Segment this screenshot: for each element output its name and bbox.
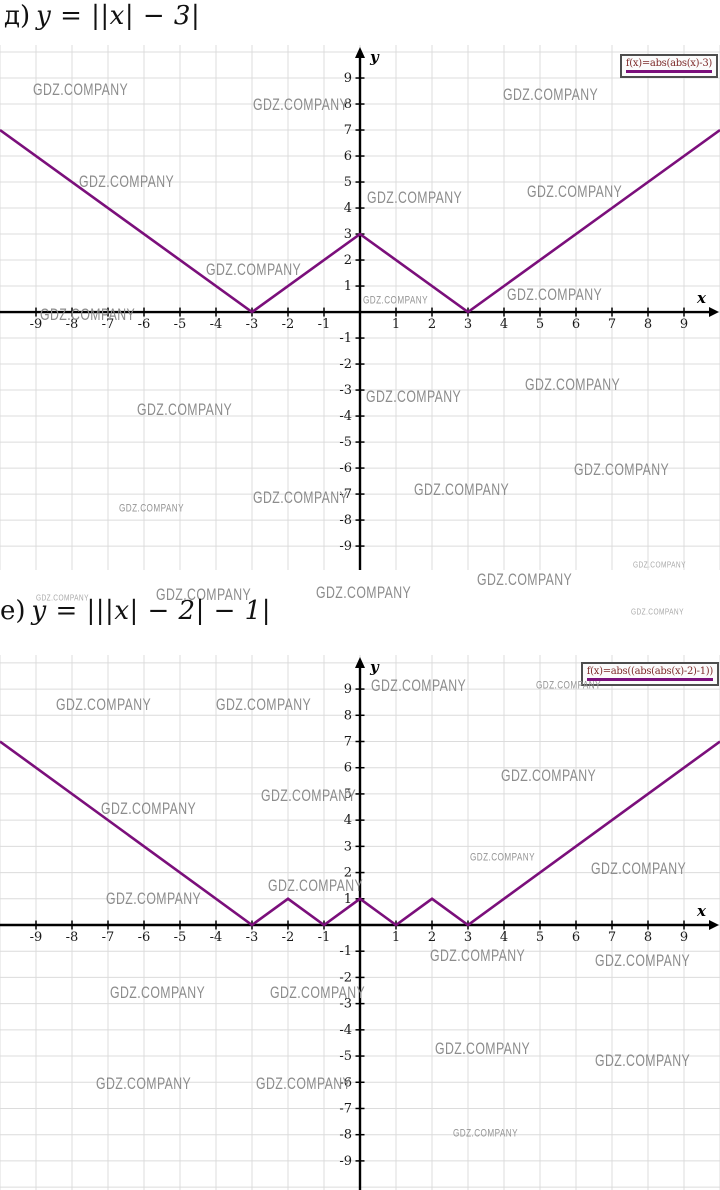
svg-text:4: 4 — [344, 201, 352, 216]
svg-text:-1: -1 — [339, 331, 352, 346]
svg-text:1: 1 — [344, 279, 352, 294]
svg-text:-1: -1 — [339, 944, 352, 959]
svg-text:5: 5 — [536, 317, 544, 332]
svg-text:-3: -3 — [246, 317, 259, 332]
figure1-formula: y = ||x| − 3| — [36, 1, 200, 31]
figure2-legend-line-swatch — [587, 678, 713, 681]
svg-text:4: 4 — [500, 930, 508, 945]
svg-text:2: 2 — [344, 253, 352, 268]
svg-text:6: 6 — [572, 317, 580, 332]
svg-text:6: 6 — [344, 149, 352, 164]
svg-text:8: 8 — [344, 97, 352, 112]
svg-text:8: 8 — [644, 930, 652, 945]
figure2-plot: -9-8-7-6-5-4-3-2-1123456789-9-8-7-6-5-4-… — [0, 655, 720, 1190]
svg-text:-5: -5 — [339, 435, 352, 450]
figure1-plot: -9-8-7-6-5-4-3-2-1123456789-9-8-7-6-5-4-… — [0, 45, 720, 570]
svg-text:1: 1 — [392, 317, 400, 332]
svg-text:-7: -7 — [339, 487, 352, 502]
svg-text:y: y — [369, 48, 380, 66]
svg-text:4: 4 — [344, 813, 352, 828]
figure2-formula: y = |||x| − 2| − 1| — [32, 596, 271, 626]
svg-text:-9: -9 — [30, 930, 43, 945]
svg-text:-7: -7 — [102, 317, 115, 332]
svg-text:8: 8 — [644, 317, 652, 332]
svg-text:5: 5 — [536, 930, 544, 945]
watermark: GDZ.COMPANY — [631, 607, 684, 617]
svg-text:-3: -3 — [246, 930, 259, 945]
svg-text:9: 9 — [344, 71, 352, 86]
svg-text:7: 7 — [608, 930, 616, 945]
svg-text:-4: -4 — [210, 317, 223, 332]
svg-text:3: 3 — [464, 930, 472, 945]
svg-text:1: 1 — [392, 930, 400, 945]
svg-text:7: 7 — [344, 735, 352, 750]
svg-text:-1: -1 — [318, 930, 331, 945]
svg-text:-9: -9 — [339, 1154, 352, 1169]
svg-text:-5: -5 — [174, 930, 187, 945]
svg-text:-5: -5 — [339, 1049, 352, 1064]
svg-text:3: 3 — [464, 317, 472, 332]
figure2-legend: f(x)=abs((abs(abs(x)-2)-1)) — [581, 662, 719, 686]
svg-text:6: 6 — [344, 761, 352, 776]
figure2-canvas: -9-8-7-6-5-4-3-2-1123456789-9-8-7-6-5-4-… — [0, 655, 720, 1190]
figure2-label: е) — [0, 596, 26, 626]
svg-text:-9: -9 — [30, 317, 43, 332]
svg-text:-8: -8 — [66, 317, 79, 332]
svg-text:-8: -8 — [339, 513, 352, 528]
svg-text:4: 4 — [500, 317, 508, 332]
svg-text:x: x — [696, 902, 707, 920]
svg-text:-6: -6 — [339, 461, 352, 476]
figure1-legend-formula: f(x)=abs(abs(x)-3) — [626, 58, 712, 69]
svg-text:9: 9 — [680, 930, 688, 945]
svg-text:7: 7 — [344, 123, 352, 138]
svg-text:-5: -5 — [174, 317, 187, 332]
svg-text:2: 2 — [428, 930, 436, 945]
svg-text:-8: -8 — [66, 930, 79, 945]
svg-text:-8: -8 — [339, 1128, 352, 1143]
page: д)y = ||x| − 3| -9-8-7-6-5-4-3-2-1123456… — [0, 0, 720, 1190]
svg-text:-6: -6 — [138, 930, 151, 945]
svg-text:-4: -4 — [210, 930, 223, 945]
figure2-legend-formula: f(x)=abs((abs(abs(x)-2)-1)) — [587, 666, 713, 677]
svg-text:-6: -6 — [138, 317, 151, 332]
figure1-legend: f(x)=abs(abs(x)-3) — [620, 54, 718, 78]
svg-text:9: 9 — [344, 682, 352, 697]
figure1-label: д) — [4, 1, 30, 31]
svg-text:-3: -3 — [339, 383, 352, 398]
svg-text:-1: -1 — [318, 317, 331, 332]
svg-text:-6: -6 — [339, 1075, 352, 1090]
svg-text:-4: -4 — [339, 409, 352, 424]
figure1-canvas: -9-8-7-6-5-4-3-2-1123456789-9-8-7-6-5-4-… — [0, 45, 720, 570]
svg-text:x: x — [696, 289, 707, 307]
svg-text:-2: -2 — [339, 357, 352, 372]
svg-text:5: 5 — [344, 787, 352, 802]
svg-text:2: 2 — [428, 317, 436, 332]
watermark: GDZ.COMPANY — [477, 571, 572, 589]
svg-text:6: 6 — [572, 930, 580, 945]
figure1-legend-line-swatch — [626, 70, 712, 73]
svg-text:5: 5 — [344, 175, 352, 190]
svg-text:-3: -3 — [339, 997, 352, 1012]
svg-text:2: 2 — [344, 866, 352, 881]
svg-text:y: y — [369, 658, 380, 676]
svg-text:-2: -2 — [282, 930, 295, 945]
svg-text:3: 3 — [344, 839, 352, 854]
figure2-title: е)y = |||x| − 2| − 1| — [0, 596, 271, 626]
svg-text:-7: -7 — [339, 1101, 352, 1116]
svg-text:8: 8 — [344, 708, 352, 723]
svg-text:-9: -9 — [339, 539, 352, 554]
svg-text:7: 7 — [608, 317, 616, 332]
watermark: GDZ.COMPANY — [316, 584, 411, 602]
svg-text:-2: -2 — [282, 317, 295, 332]
svg-text:-4: -4 — [339, 1023, 352, 1038]
svg-text:-2: -2 — [339, 970, 352, 985]
svg-text:-7: -7 — [102, 930, 115, 945]
figure1-title: д)y = ||x| − 3| — [4, 1, 200, 31]
svg-text:9: 9 — [680, 317, 688, 332]
